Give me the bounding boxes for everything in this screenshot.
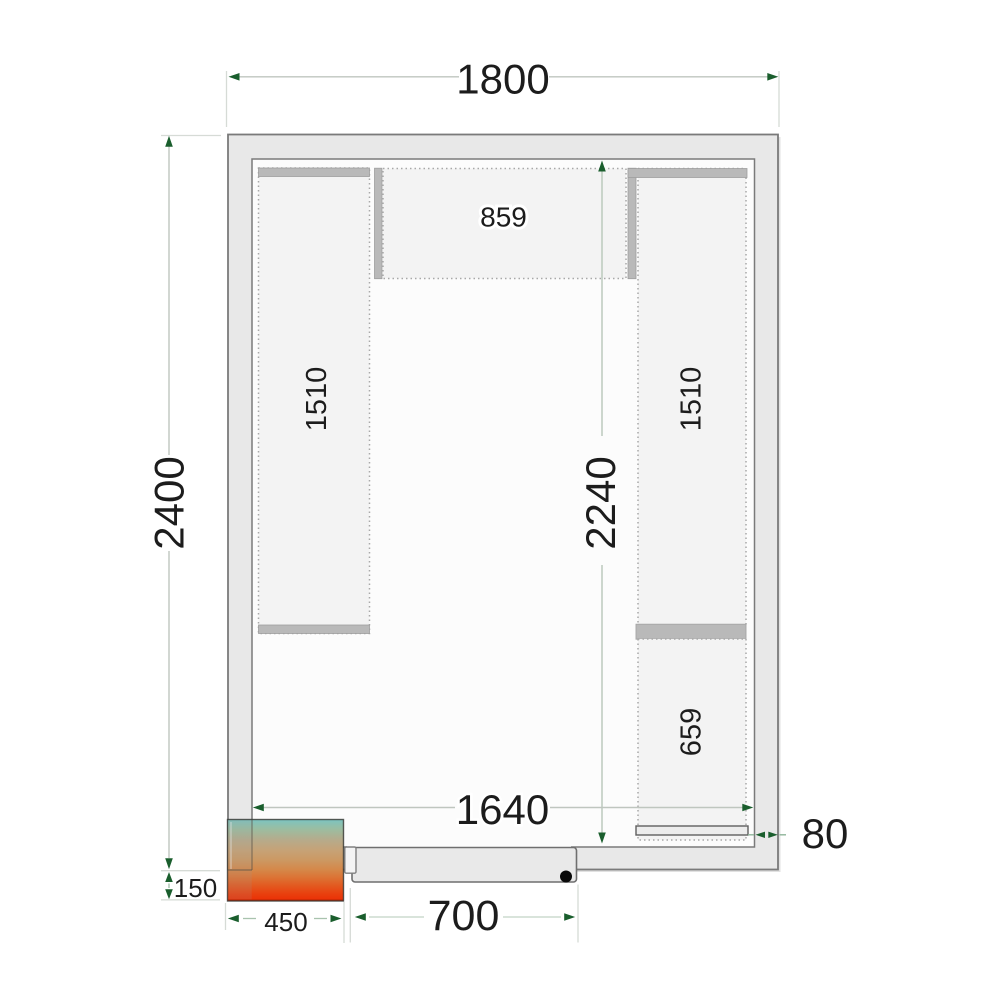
svg-text:1510: 1510 [301,367,333,432]
svg-text:450: 450 [264,907,307,937]
svg-text:80: 80 [802,810,849,857]
svg-text:150: 150 [174,873,217,903]
svg-text:1640: 1640 [456,786,549,833]
svg-text:700: 700 [428,892,500,940]
svg-text:2240: 2240 [577,456,624,549]
svg-text:859: 859 [480,202,527,233]
svg-text:1510: 1510 [676,367,708,432]
svg-text:1800: 1800 [456,56,549,103]
svg-text:659: 659 [676,708,708,756]
svg-text:2400: 2400 [146,456,193,549]
